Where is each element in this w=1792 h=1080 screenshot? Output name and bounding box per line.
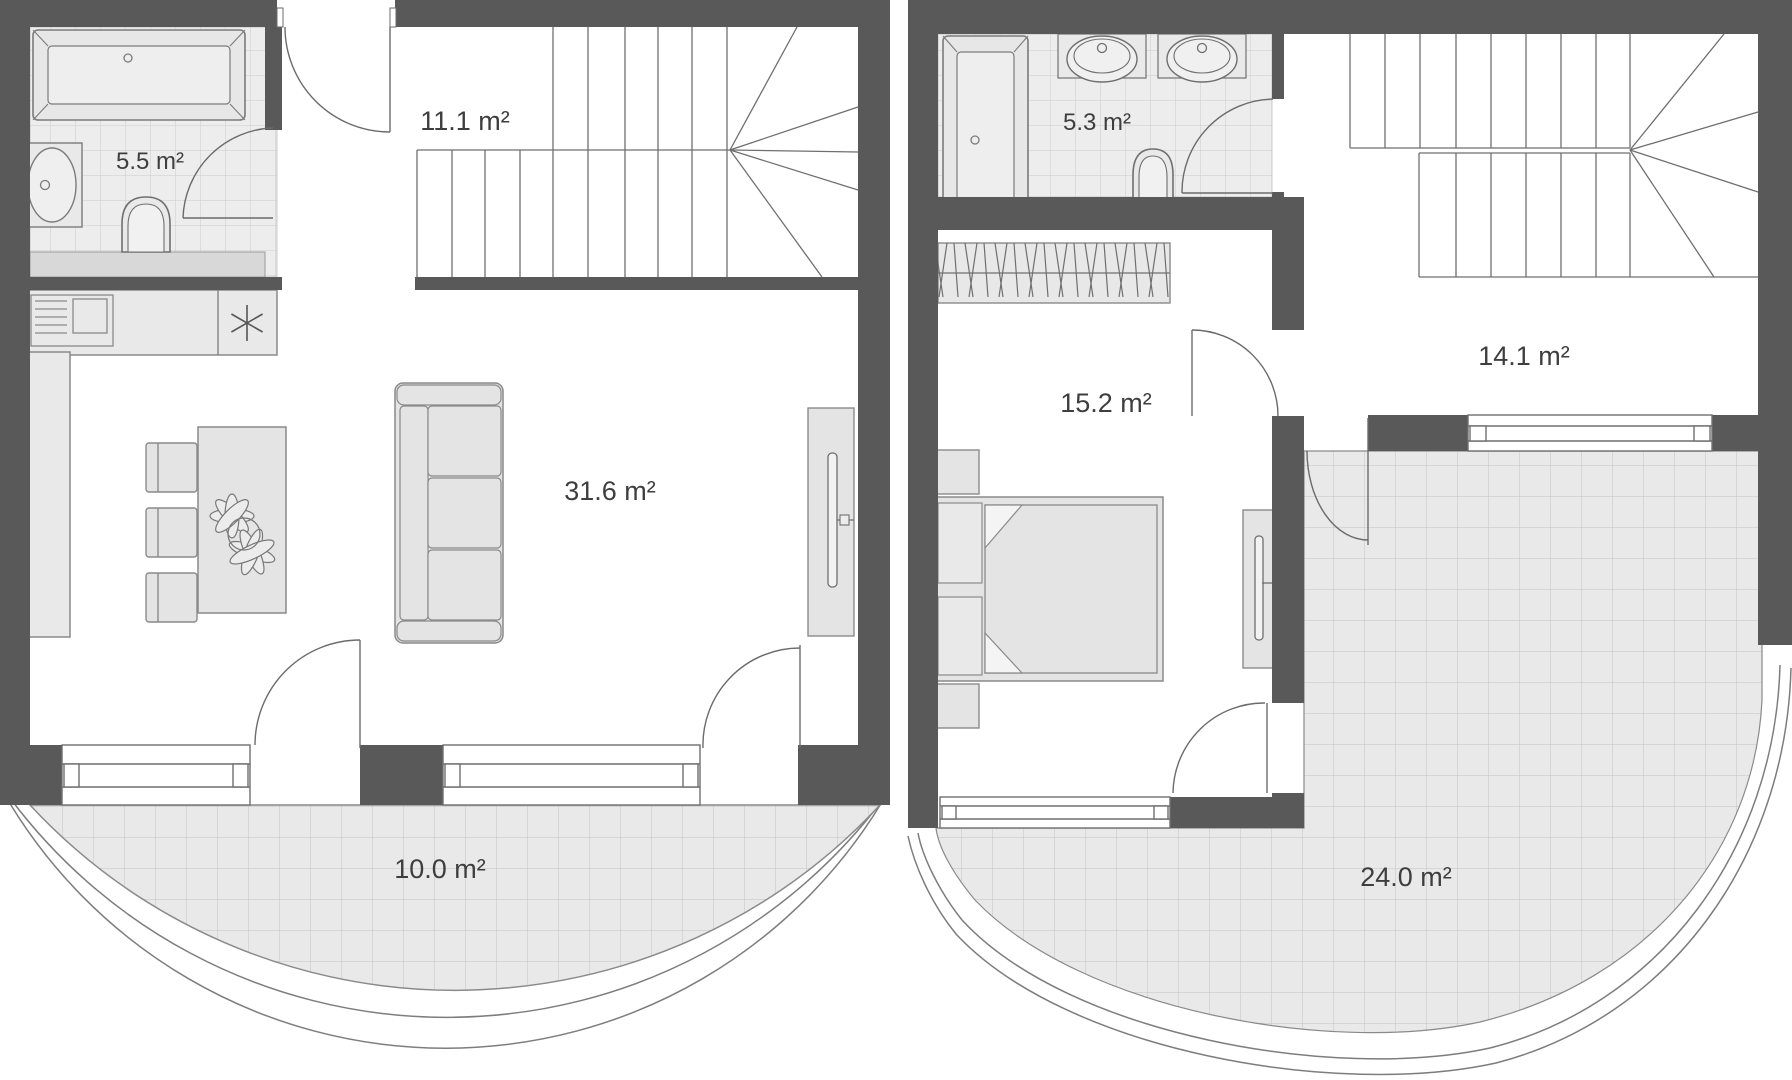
- dining-chairs: [146, 443, 197, 622]
- room-area-label: 5.3 m²: [1063, 109, 1131, 136]
- sofa-armrest: [397, 385, 501, 405]
- blanket: [985, 505, 1157, 673]
- bed: [933, 497, 1163, 681]
- room-area-label: 11.1 m²: [420, 106, 510, 136]
- wardrobe: [938, 243, 1170, 303]
- sofa-armrest: [397, 621, 501, 641]
- floor-plan-canvas: 5.5 m² 11.1 m² 31.6 m² 10.0 m²: [0, 0, 1792, 1080]
- entrance-door: [277, 8, 396, 132]
- room-area-label: 5.5 m²: [116, 148, 184, 175]
- room-area-label: 31.6 m²: [564, 476, 656, 506]
- room-area-label: 24.0 m²: [1360, 862, 1452, 892]
- room-area-label: 15.2 m²: [1060, 388, 1152, 418]
- sofa: [395, 383, 503, 643]
- nightstand: [933, 684, 979, 728]
- staircase: [1350, 34, 1758, 277]
- sink: [25, 143, 82, 227]
- staircase: [417, 27, 858, 277]
- sofa-cushions: [428, 406, 501, 620]
- pillow: [938, 597, 982, 675]
- bathtub: [943, 36, 1028, 218]
- balcony-door: [703, 645, 800, 748]
- tv-screen-icon: [1255, 536, 1263, 640]
- window: [1468, 415, 1712, 451]
- window: [940, 797, 1170, 828]
- window: [62, 745, 250, 805]
- bathroom-ledge: [30, 252, 265, 277]
- window: [443, 745, 700, 805]
- sofa-backrest: [400, 406, 428, 620]
- tv-screen-icon: [828, 453, 837, 587]
- toilet: [122, 197, 170, 252]
- bedroom-door: [1192, 330, 1278, 416]
- pillow: [938, 503, 982, 583]
- floor-plan-page: 5.5 m² 11.1 m² 31.6 m² 10.0 m²: [0, 0, 1792, 1080]
- balcony-door: [255, 640, 360, 748]
- nightstand: [933, 450, 979, 494]
- toilet: [1133, 149, 1173, 203]
- room-area-label: 10.0 m²: [394, 854, 486, 884]
- floor-plan-left: 5.5 m² 11.1 m² 31.6 m² 10.0 m²: [0, 0, 890, 1048]
- room-area-label: 14.1 m²: [1478, 341, 1570, 371]
- bathtub: [33, 30, 245, 120]
- bedroom-balcony-door: [1173, 703, 1267, 793]
- floor-plan-right: 5.3 m² 14.1 m² 15.2 m² 24.0 m²: [908, 0, 1792, 1074]
- balcony-floor-tiles: [30, 805, 880, 990]
- tv-unit: [1243, 510, 1277, 668]
- tv-unit: [808, 408, 854, 636]
